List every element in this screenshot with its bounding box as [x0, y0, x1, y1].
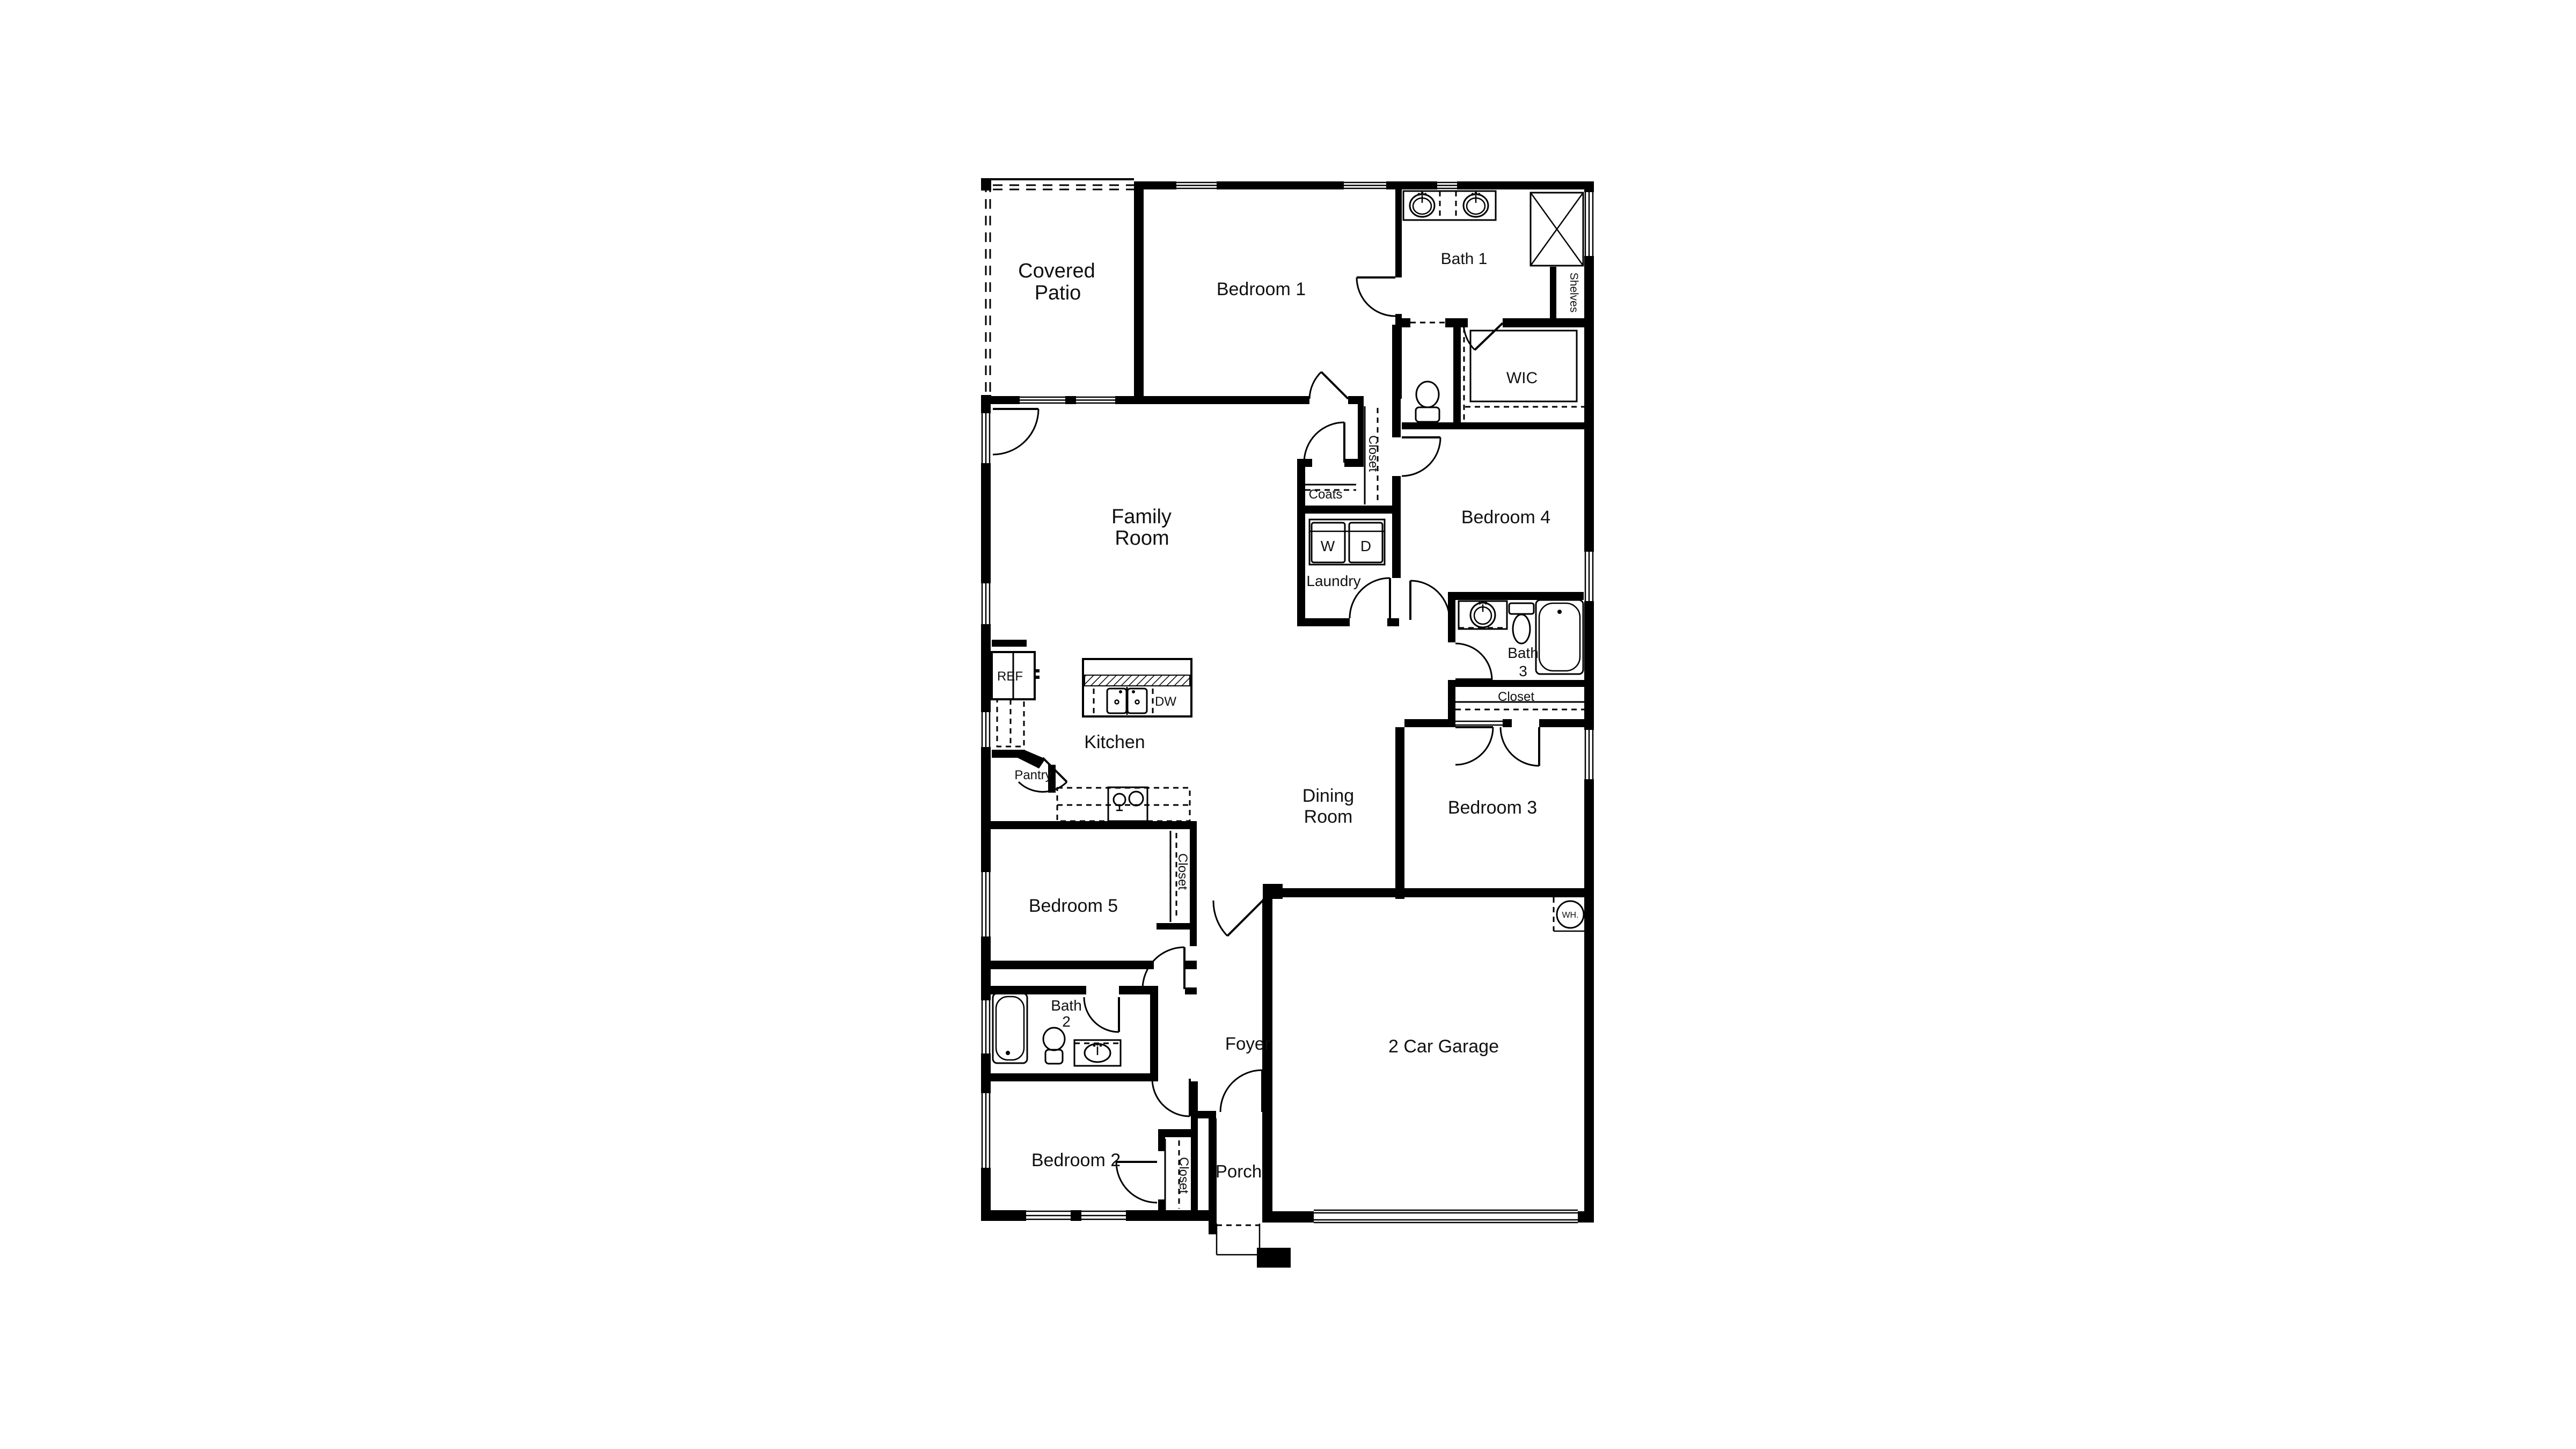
dining-label-2: Room	[1304, 807, 1353, 827]
fixtures	[992, 191, 1584, 1255]
bedroom2-door	[1152, 1079, 1190, 1116]
wic-label: WIC	[1506, 369, 1538, 387]
family-room-label-2: Room	[1115, 527, 1169, 550]
coats-door	[1304, 422, 1344, 463]
dryer-label: D	[1360, 538, 1371, 554]
garage-door	[1314, 1210, 1578, 1223]
bedroom2-label: Bedroom 2	[1031, 1150, 1121, 1170]
bath2-door	[1084, 997, 1119, 1032]
toilet-icon	[1509, 603, 1534, 643]
window	[1081, 1210, 1126, 1221]
coats-label: Coats	[1309, 487, 1343, 502]
shelves-label: Shelves	[1568, 273, 1580, 313]
hall-closet-label: Closet	[1366, 435, 1380, 472]
bedroom3-door	[1501, 727, 1539, 766]
window	[980, 712, 991, 747]
patio-door	[993, 409, 1038, 455]
bathtub-icon	[993, 993, 1027, 1063]
pantry-label: Pantry	[1014, 768, 1051, 782]
bedroom2-closet-label: Closet	[1176, 1157, 1191, 1194]
toilet-icon	[1416, 382, 1439, 422]
bathtub-icon	[1536, 600, 1583, 674]
covered-patio-label: Covered	[1018, 260, 1095, 282]
front-door	[1220, 1070, 1262, 1112]
bedroom2-closet-door	[1116, 1162, 1157, 1203]
window	[1584, 730, 1594, 779]
window	[980, 413, 991, 463]
window	[1026, 1210, 1071, 1221]
dw-label: DW	[1155, 694, 1176, 709]
family-room-label: Family	[1111, 506, 1172, 528]
bath2-label-2: 2	[1062, 1013, 1071, 1030]
window	[1584, 192, 1594, 256]
window	[1437, 181, 1457, 190]
window	[1020, 396, 1065, 405]
bedroom4-label: Bedroom 4	[1461, 507, 1550, 528]
kitchen-label: Kitchen	[1084, 732, 1145, 752]
bath3-label-2: 3	[1519, 663, 1527, 679]
bedroom5-door	[1143, 947, 1184, 989]
garage-label: 2 Car Garage	[1388, 1036, 1499, 1057]
porch-label: Porch	[1216, 1161, 1262, 1181]
dining-label: Dining	[1302, 786, 1354, 806]
window	[980, 872, 991, 936]
ref-label: REF	[997, 669, 1023, 684]
window	[1176, 181, 1217, 190]
bedroom4-door	[1402, 437, 1440, 476]
washer-label: W	[1321, 538, 1335, 554]
window	[980, 1000, 991, 1053]
bath3-closet-label: Closet	[1498, 690, 1534, 704]
bedroom3-closet-door	[1455, 727, 1493, 765]
shower-icon	[1531, 193, 1583, 266]
bath1-door	[1357, 277, 1395, 316]
hall-door	[1410, 581, 1450, 620]
bath3-label: Bath	[1507, 645, 1539, 661]
wic-door	[1463, 323, 1503, 350]
bath2-vanity-icon	[1074, 1040, 1121, 1066]
window	[980, 583, 991, 624]
bath1-label: Bath 1	[1441, 250, 1488, 268]
dining-foyer-door	[1213, 901, 1263, 936]
bath3-vanity-icon	[1459, 601, 1507, 630]
window	[1076, 396, 1115, 405]
window	[1584, 552, 1594, 601]
bath3-door	[1455, 643, 1492, 680]
range-counter	[1057, 787, 1190, 821]
bedroom1-label: Bedroom 1	[1217, 279, 1306, 299]
bath2-label: Bath	[1051, 997, 1082, 1014]
bedroom3-label: Bedroom 3	[1448, 797, 1537, 818]
laundry-label: Laundry	[1306, 573, 1360, 589]
toilet-icon	[1043, 1028, 1065, 1064]
bedroom5-closet-label: Closet	[1175, 853, 1190, 890]
bedroom1-door	[1309, 372, 1348, 399]
double-vanity-icon	[1403, 191, 1496, 220]
covered-patio-label-2: Patio	[1035, 282, 1081, 304]
kitchen-upper-cabinet	[997, 699, 1024, 747]
porch-slab	[1217, 1224, 1260, 1255]
window	[1344, 181, 1386, 190]
bedroom5-label: Bedroom 5	[1029, 896, 1118, 916]
floor-plan: Covered Patio Bedroom 1 Bath 1 Shelves W…	[0, 0, 2576, 1449]
window	[980, 1093, 991, 1168]
water-heater-label: WH.	[1562, 911, 1578, 920]
foyer-label: Foyer	[1225, 1034, 1270, 1053]
